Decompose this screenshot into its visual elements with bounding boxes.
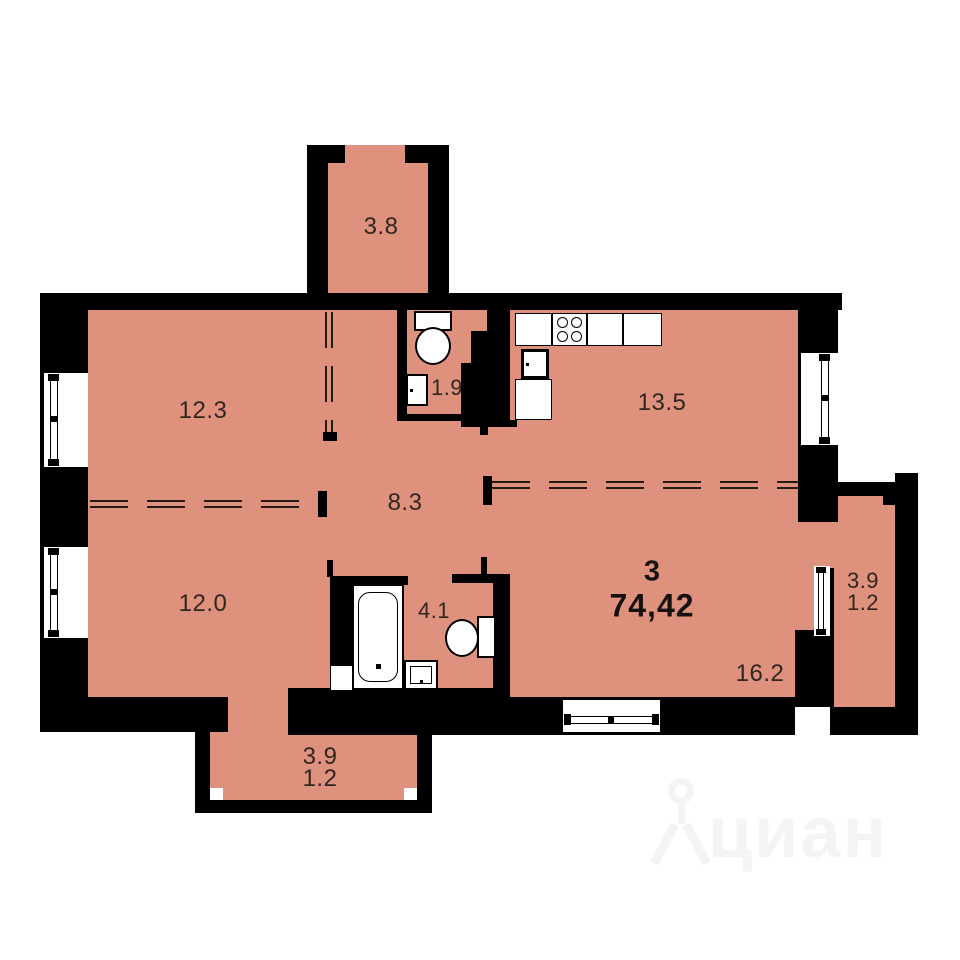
cian-pin-icon [654, 778, 706, 868]
wall-balcony-right-top [838, 482, 895, 496]
room-label-bedroom-top: 12.3 [179, 397, 228, 425]
room-label-wc: 1.9 [431, 375, 463, 401]
room-label-balcony-right: 3.9 1.2 [847, 570, 879, 614]
wall-balcony-top-left [307, 163, 328, 310]
wall-wc-step1 [487, 310, 510, 331]
kitchen-counter-2 [587, 313, 623, 346]
cian-watermark-text: циан [708, 792, 888, 874]
wall-wc-step2 [471, 331, 510, 363]
bath-niche [331, 666, 352, 690]
cian-watermark: циан [636, 778, 916, 878]
sink-icon-bathroom [404, 660, 438, 690]
toilet-bowl-icon-bathroom [445, 619, 479, 657]
window-living-bottom [563, 700, 660, 732]
window-balcony-partition [814, 566, 830, 636]
balcony-right-area: 3.9 [847, 570, 879, 592]
toilet-tank-icon-bathroom [477, 616, 496, 658]
wall-balcony-bottom-bottom [195, 800, 432, 813]
toilet-bowl-icon-wc [415, 327, 451, 365]
wall-bottom-left [40, 697, 228, 732]
balcony-bottom-reduced-area: 1.2 [303, 768, 338, 790]
kitchen-counter-1 [515, 313, 552, 346]
wall-living-corner-block [795, 630, 830, 707]
dashed-partition-left [90, 500, 320, 508]
room-label-bathroom: 4.1 [418, 598, 450, 624]
wall-bath-door-post-right [481, 557, 487, 574]
room-label-hallway: 8.3 [388, 489, 423, 517]
kitchen-counter-4 [515, 379, 552, 420]
wall-balcony-top-caps-right [405, 145, 449, 163]
dashed-partition-tcap-right [483, 476, 492, 505]
sink-icon-wc [406, 374, 428, 406]
room-label-balcony-top: 3.8 [364, 213, 399, 241]
wall-wc-step3 [461, 363, 510, 420]
wall-wc-bottom [397, 414, 463, 421]
dashed-partition-vertical [325, 312, 333, 438]
room-label-bedroom-bottom: 12.0 [179, 590, 228, 618]
wall-left [40, 293, 88, 732]
wall-kitchen-entry-post [480, 426, 488, 435]
wall-bath-door-post-left [327, 560, 333, 577]
bathtub-icon [352, 584, 404, 690]
room-label-living: 16.2 [736, 660, 785, 688]
rooms-count: 3 [644, 556, 660, 589]
wall-balcony-right-step [883, 496, 895, 505]
total-area: 74,42 [609, 588, 694, 625]
notch-balcony-bottom-right [404, 788, 417, 800]
wall-kitchen-entry [461, 420, 517, 427]
room-label-balcony-bottom: 3.9 1.2 [303, 746, 338, 790]
wall-outer-right [895, 473, 918, 735]
wall-balcony-right-bottom [830, 707, 918, 735]
dashed-partition-right [492, 481, 798, 489]
kitchen-counter-3 [623, 313, 662, 346]
floor-balcony-bottom-passage [228, 690, 288, 735]
dashed-partition-tcap-left [318, 491, 327, 517]
window-left-bottom [44, 547, 88, 638]
window-kitchen-right [801, 353, 838, 445]
wall-balcony-top-right [428, 163, 449, 310]
floor-plan: 3.8 12.3 1.9 13.5 8.3 12.0 4.1 16.2 3.9 … [0, 0, 960, 960]
stove-icon [552, 313, 587, 346]
room-label-kitchen: 13.5 [638, 389, 687, 417]
balcony-right-reduced-area: 1.2 [847, 592, 879, 614]
dashed-partition-end-cap [323, 432, 337, 441]
wall-bottom-under-bath [288, 688, 510, 735]
notch-balcony-bottom-left [210, 788, 223, 800]
kitchen-sink-cabinet-icon [521, 349, 549, 379]
wall-balcony-top-caps-left [307, 145, 345, 163]
window-left-top [44, 373, 88, 467]
